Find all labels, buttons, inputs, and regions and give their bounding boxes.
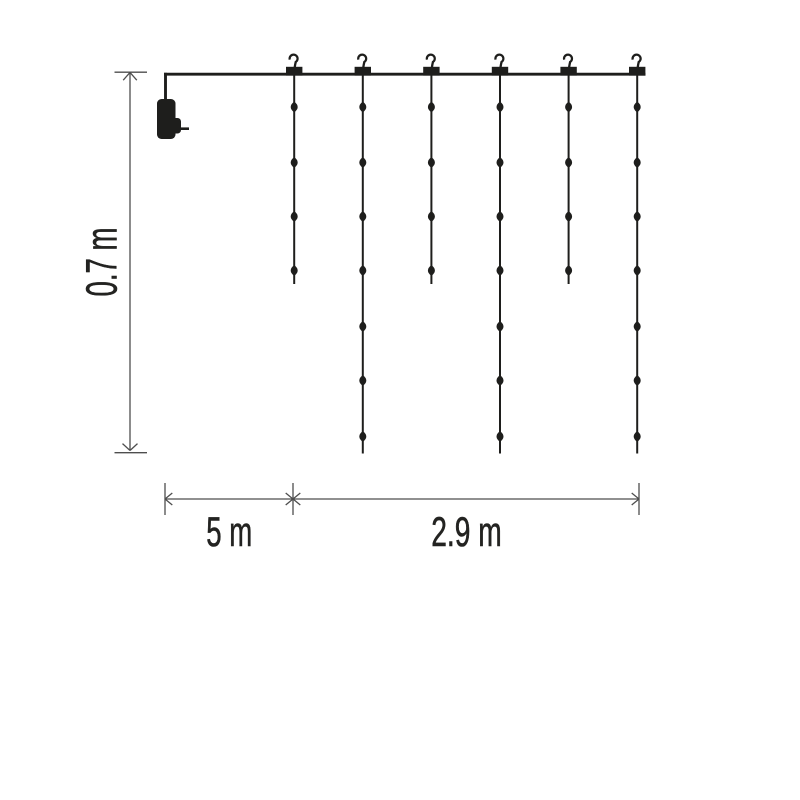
svg-text:2.9 m: 2.9 m xyxy=(431,508,502,555)
svg-text:0.7 m: 0.7 m xyxy=(78,228,127,297)
svg-text:5 m: 5 m xyxy=(206,508,252,555)
